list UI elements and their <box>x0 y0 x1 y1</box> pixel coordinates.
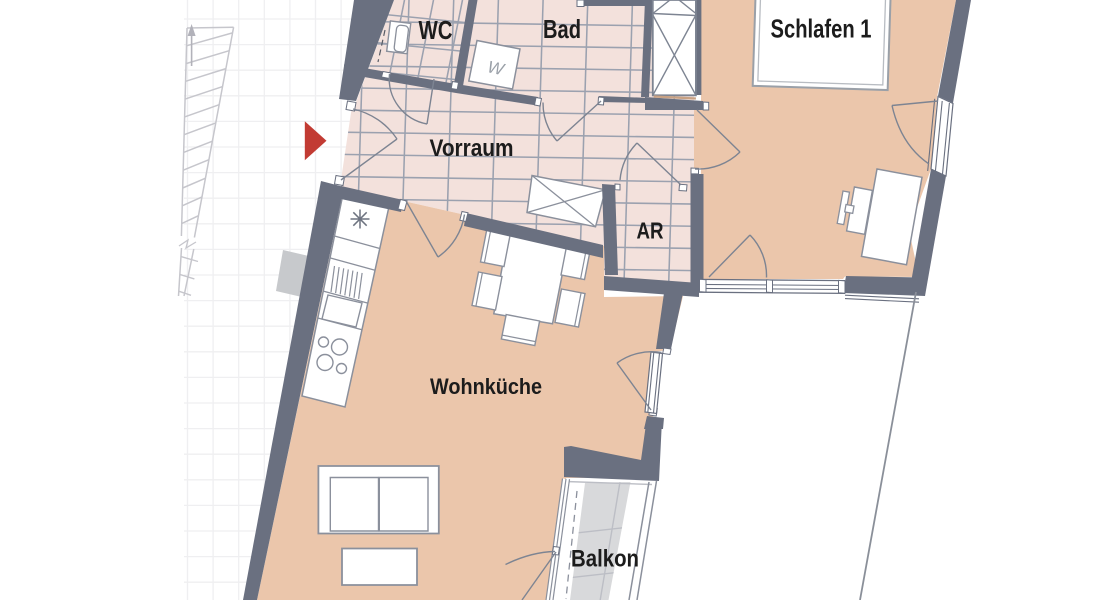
svg-text:AR: AR <box>637 218 664 244</box>
svg-text:Balkon: Balkon <box>571 546 639 573</box>
svg-text:Schlafen 1: Schlafen 1 <box>771 14 872 44</box>
svg-text:Wohnküche: Wohnküche <box>430 374 542 399</box>
svg-text:WC: WC <box>419 15 453 45</box>
svg-text:Bad: Bad <box>543 14 581 44</box>
svg-text:Vorraum: Vorraum <box>430 135 514 162</box>
